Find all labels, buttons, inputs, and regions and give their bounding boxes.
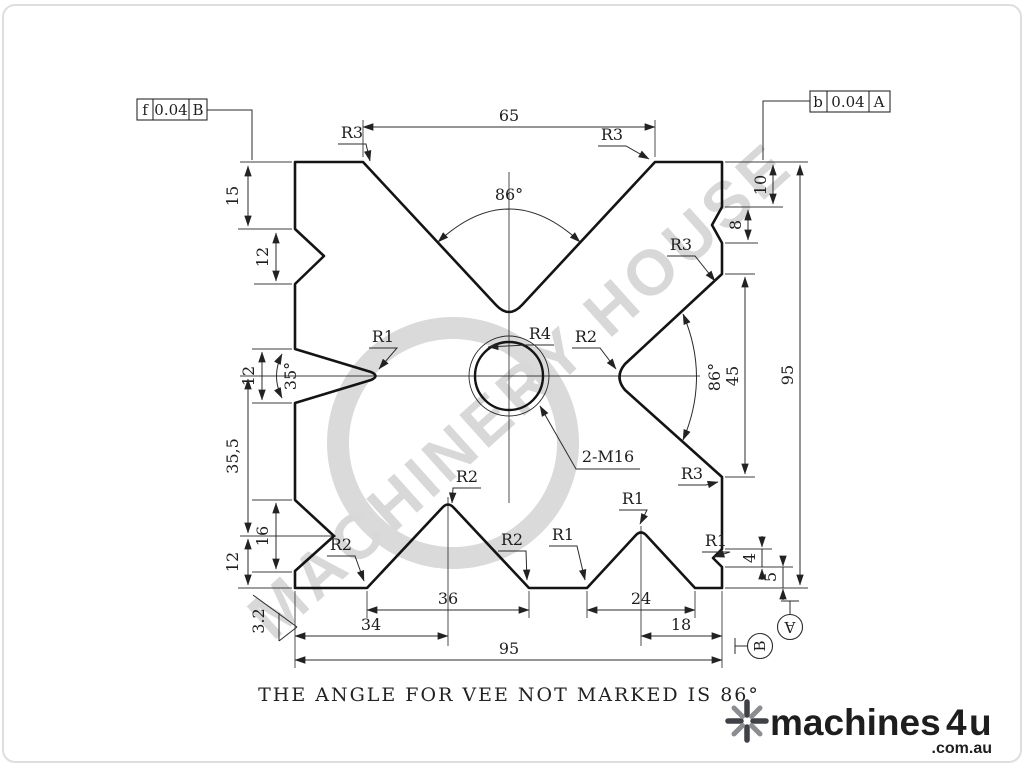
- die-drawing-svg: MACHINERY HOUSE: [0, 0, 1024, 768]
- dim-label-bottom-left-span: 34: [361, 615, 381, 634]
- dim-label-right-top-offset: 10: [751, 175, 770, 195]
- dim-label-left-top-offset: 15: [223, 186, 242, 206]
- label-r3-right-upper: R3: [670, 235, 692, 254]
- dim-label-right-height: 95: [778, 365, 797, 385]
- machines4u-icon: [728, 702, 766, 740]
- tolerance-left-connector: [207, 110, 252, 160]
- dim-label-left-span: 35,5: [223, 438, 242, 474]
- dim-label-left-top-vee: 12: [253, 247, 272, 267]
- label-r1-notch: R1: [705, 531, 727, 550]
- dim-label-angle-right: 86°: [705, 363, 724, 391]
- label-r1-vee24-apex: R1: [622, 489, 644, 508]
- datum-b-letter: B: [751, 640, 769, 651]
- dim-label-left-bottom-vee: 16: [253, 526, 272, 546]
- label-r1-vee24-left: R1: [552, 525, 574, 544]
- machines4u-logo: machines 4 u .com.au: [728, 702, 992, 757]
- logo-suffix-text: u: [969, 702, 992, 743]
- dim-label-right-notch: 4: [740, 553, 759, 563]
- tolerance-right-symbol: b: [813, 93, 823, 111]
- label-r1-left-vee: R1: [372, 327, 394, 346]
- label-r2-vee36-right: R2: [501, 530, 523, 549]
- dim-label-right-vee-span: 45: [723, 366, 742, 386]
- label-r2-right-apex: R2: [575, 327, 597, 346]
- tolerance-left-symbol: f: [142, 101, 149, 119]
- logo-domain-text: .com.au: [932, 740, 992, 757]
- datum-b-symbol: B: [735, 634, 773, 659]
- dim-label-left-mid-vee: 12: [239, 366, 258, 386]
- datum-a-symbol: A: [778, 601, 803, 640]
- dim-label-bottom-vee-24: 24: [631, 589, 651, 608]
- dim-label-bottom-right-span: 18: [671, 615, 691, 634]
- tolerance-left-datum: B: [192, 101, 203, 119]
- dim-label-bottom-vee-36: 36: [438, 589, 458, 608]
- arc-angle-right: [683, 314, 697, 440]
- roughness-value: 3.2: [249, 608, 268, 633]
- label-r3-top-right: R3: [601, 125, 623, 144]
- dim-label-top-width: 65: [499, 106, 519, 125]
- drawing-page: MACHINERY HOUSE: [0, 0, 1024, 768]
- label-thread-callout: 2-M16: [582, 447, 634, 466]
- label-r3-top-left: R3: [341, 123, 363, 142]
- dim-label-right-notch-offset: 5: [761, 572, 780, 582]
- tolerance-right-datum: A: [873, 93, 885, 111]
- datum-a-letter: A: [784, 618, 796, 636]
- leader-r3-top-right: [598, 146, 649, 159]
- tolerance-frame-left: f 0.04 B: [137, 99, 252, 160]
- leader-r3-top-left: [338, 144, 370, 161]
- tolerance-right-value: 0.04: [831, 93, 864, 111]
- dim-label-left-bottom-offset: 12: [223, 552, 242, 572]
- logo-number-text: 4: [946, 702, 967, 743]
- dim-label-bottom-width: 95: [499, 639, 519, 658]
- label-r2-vee36-apex: R2: [456, 467, 478, 486]
- tolerance-left-value: 0.04: [154, 101, 187, 119]
- tolerance-frame-right: b 0.04 A: [763, 91, 890, 160]
- drawing-note: THE ANGLE FOR VEE NOT MARKED IS 86°: [258, 684, 760, 706]
- dim-label-right-top-vee: 8: [726, 220, 745, 230]
- dim-label-angle-top: 86°: [495, 185, 523, 204]
- leader-r1-vee24-left: [549, 546, 585, 580]
- label-r3-right-lower: R3: [681, 464, 703, 483]
- label-r4-apex: R4: [529, 324, 551, 343]
- logo-brand-text: machines: [770, 702, 941, 743]
- dim-label-angle-left-vee: 35°: [281, 362, 300, 390]
- label-r2-bottom-left: R2: [330, 535, 352, 554]
- leader-r1-vee24-apex: [619, 510, 647, 524]
